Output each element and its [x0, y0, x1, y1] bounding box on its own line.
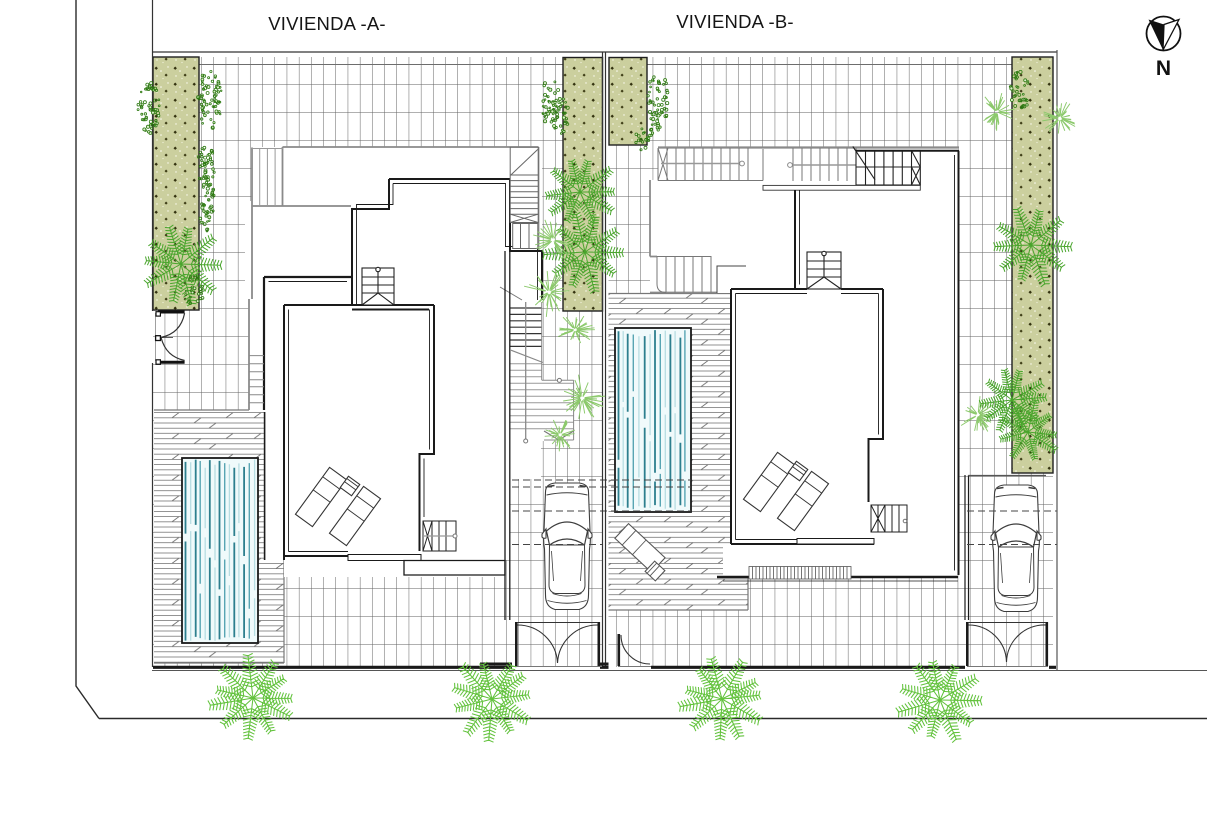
svg-text:VIVIENDA -B-: VIVIENDA -B- — [676, 11, 794, 32]
svg-text:VIVIENDA -A-: VIVIENDA -A- — [268, 13, 386, 34]
svg-text:N: N — [1156, 57, 1171, 80]
